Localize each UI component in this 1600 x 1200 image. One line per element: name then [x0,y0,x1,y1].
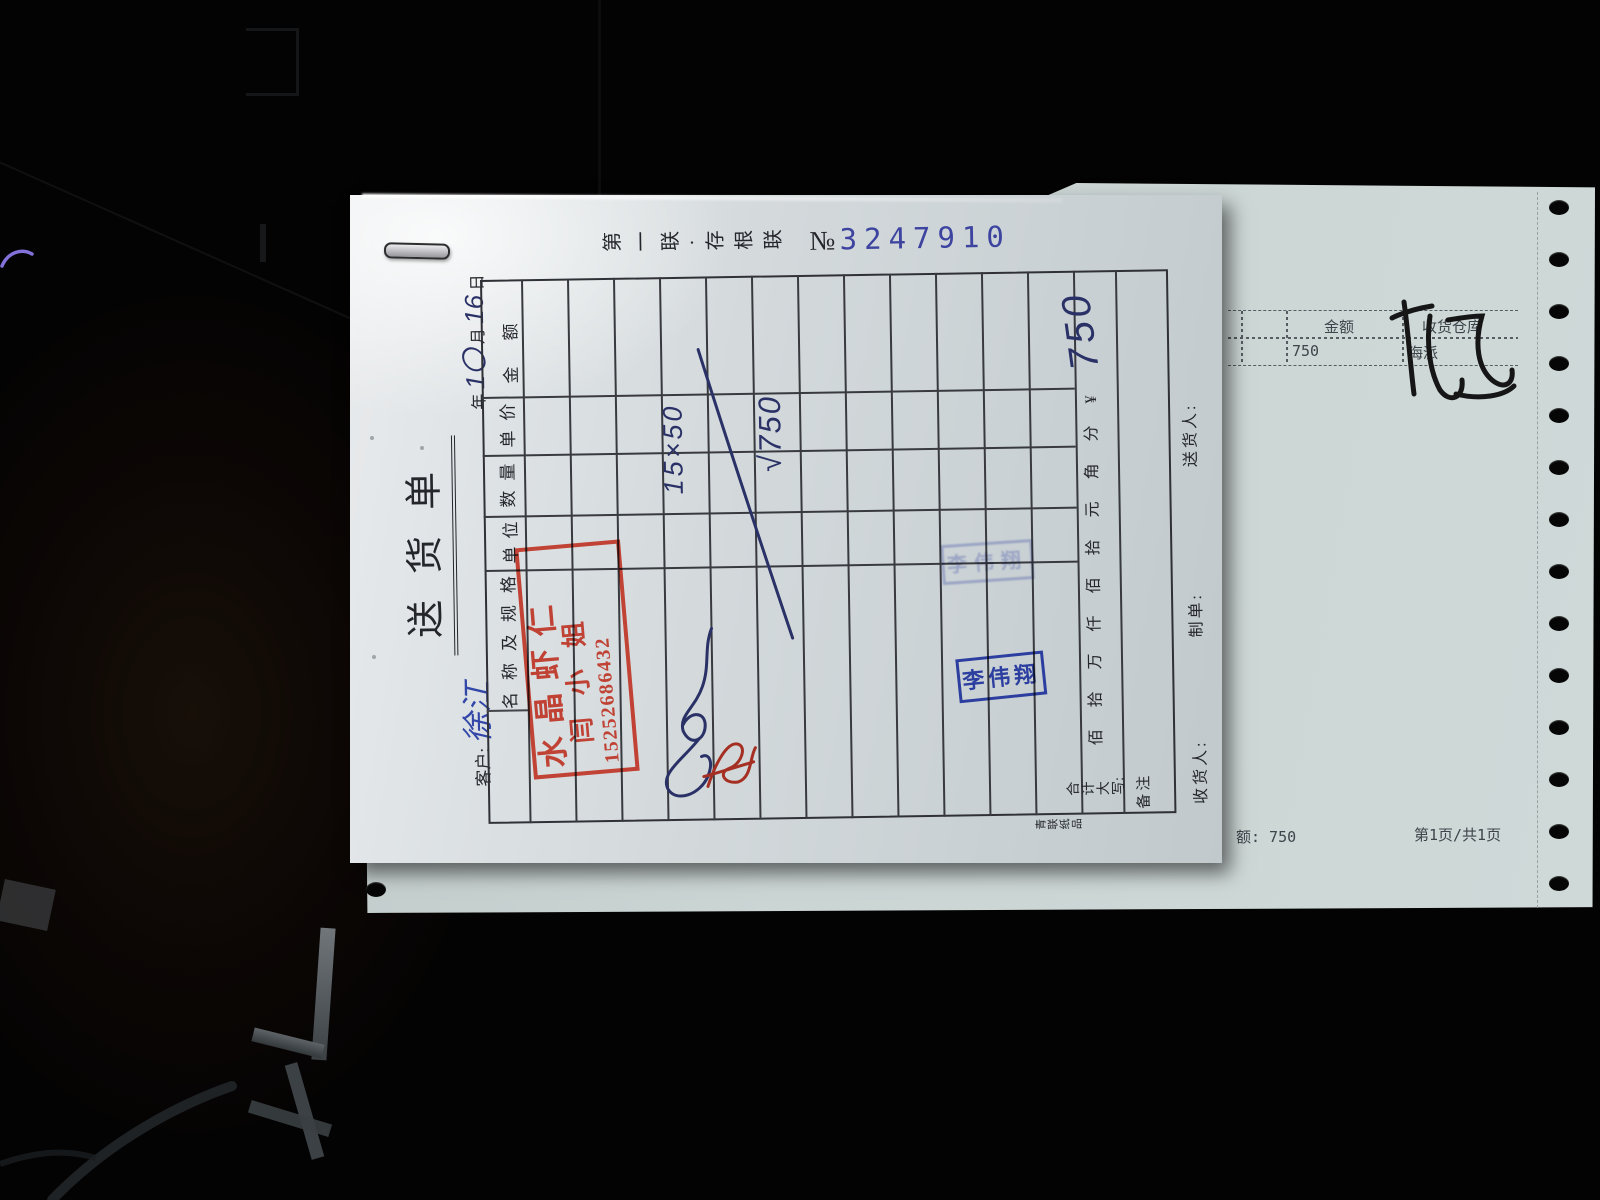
delivery-note-content: 第一联·存根联 № 3247910 送货单 客户: 徐江 年 1〇 月 16 日 [0,0,1600,1200]
photo-of-delivery-note: 金额 收货仓库 750 海派 额: 750 第1页/共1页 第一联·存根联 № … [0,0,1600,1200]
signature-blue-scribble [666,738,711,796]
diagonal-stroke [698,348,793,639]
signature-red-scribble [707,744,756,787]
ink-scribbles [0,0,1600,1200]
signature-blue-scribble [681,628,713,740]
